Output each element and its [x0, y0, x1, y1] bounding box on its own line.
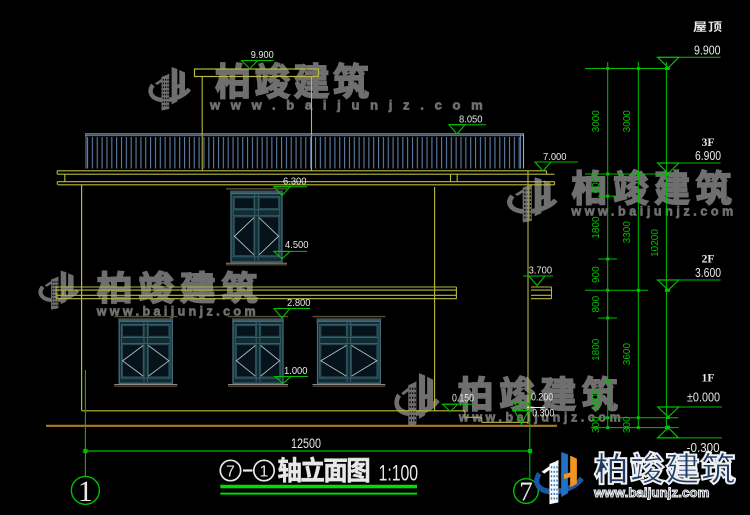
- svg-text:1800: 1800: [591, 216, 602, 239]
- svg-text:www.baijunjz.com: www.baijunjz.com: [209, 98, 493, 113]
- svg-text:7.000: 7.000: [543, 152, 567, 163]
- svg-text:800: 800: [591, 295, 602, 312]
- svg-text:10200: 10200: [650, 229, 661, 257]
- svg-text:3.600: 3.600: [695, 266, 721, 280]
- svg-text:3300: 3300: [622, 221, 633, 244]
- svg-text:3.700: 3.700: [529, 266, 553, 277]
- svg-text:6.300: 6.300: [283, 177, 307, 188]
- svg-text:4.500: 4.500: [285, 240, 309, 251]
- svg-text:3000: 3000: [591, 110, 602, 133]
- svg-text:±0.000: ±0.000: [687, 391, 720, 405]
- svg-text:7: 7: [519, 477, 533, 507]
- svg-text:300: 300: [622, 416, 633, 433]
- svg-text:3000: 3000: [622, 110, 633, 133]
- svg-text:300: 300: [591, 416, 602, 433]
- svg-text:0.200: 0.200: [531, 392, 553, 404]
- svg-text:0.300: 0.300: [532, 407, 554, 419]
- svg-text:1000: 1000: [591, 388, 602, 411]
- svg-text:8.050: 8.050: [459, 115, 483, 126]
- svg-text:12500: 12500: [291, 436, 321, 451]
- svg-text:600: 600: [591, 176, 602, 193]
- svg-text:3F: 3F: [702, 137, 715, 149]
- svg-text:0.150: 0.150: [452, 393, 474, 405]
- svg-text:900: 900: [591, 266, 602, 283]
- svg-text:1: 1: [78, 475, 93, 508]
- svg-text:9.900: 9.900: [694, 44, 721, 58]
- svg-text:1.000: 1.000: [284, 366, 308, 377]
- svg-text:9.900: 9.900: [251, 50, 274, 61]
- svg-text:2.800: 2.800: [287, 298, 311, 309]
- svg-text:-0.300: -0.300: [687, 441, 720, 455]
- svg-text:3600: 3600: [622, 343, 633, 366]
- svg-text:1: 1: [260, 464, 269, 481]
- svg-text:1:100: 1:100: [379, 461, 419, 486]
- svg-text:www.baijunjz.com: www.baijunjz.com: [593, 485, 709, 500]
- svg-text:7: 7: [226, 464, 235, 481]
- svg-text:6.900: 6.900: [695, 149, 721, 163]
- svg-text:1F: 1F: [702, 373, 715, 385]
- svg-text:2F: 2F: [702, 254, 715, 266]
- svg-text:www.baijunjz.com: www.baijunjz.com: [570, 205, 736, 219]
- svg-text:1800: 1800: [591, 338, 602, 361]
